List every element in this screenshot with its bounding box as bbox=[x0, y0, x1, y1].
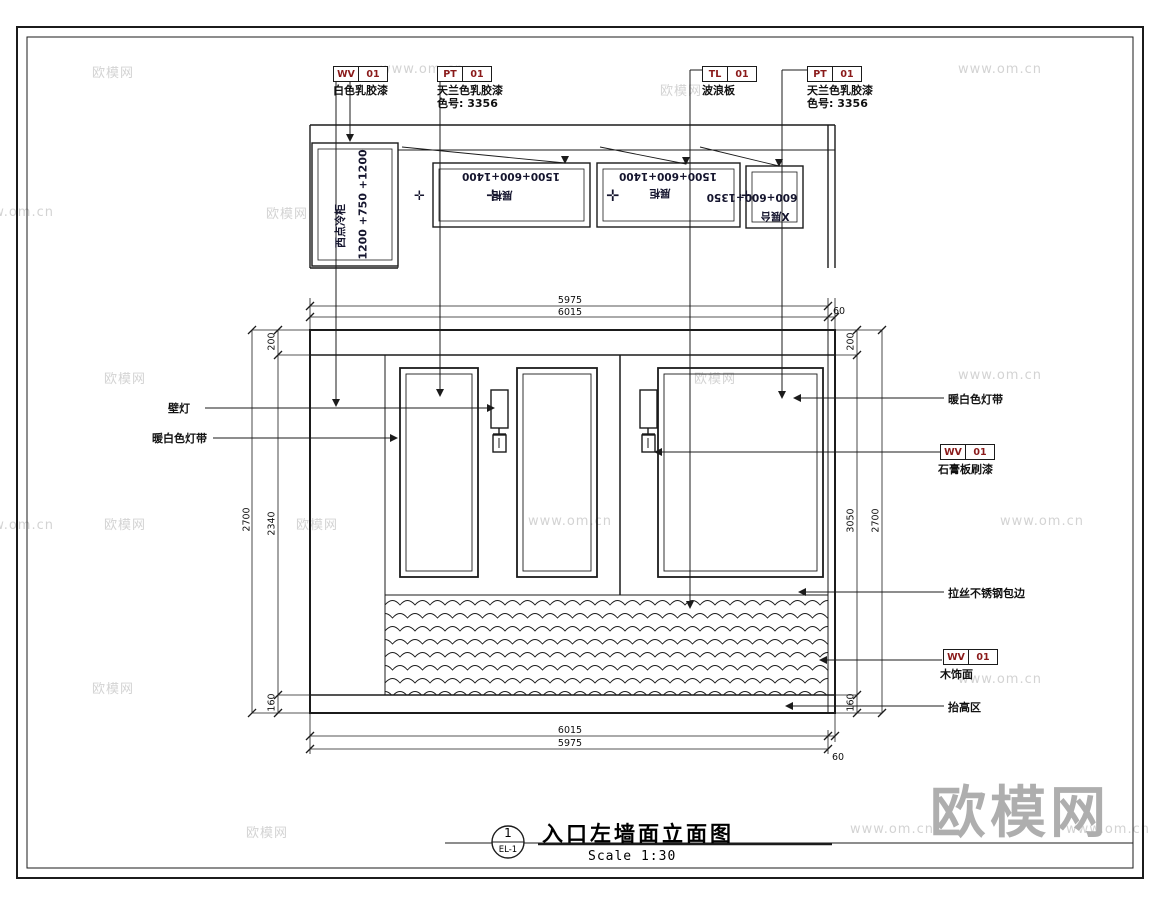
tag-number: 01 bbox=[728, 67, 756, 81]
ceiling-light-icon: ✛ bbox=[486, 186, 499, 205]
sheet-number: EL-1 bbox=[492, 845, 524, 855]
dim-left-base: 160 bbox=[267, 683, 278, 723]
callout-led-strip-right: 暖白色灯带 bbox=[948, 391, 1003, 407]
detail-number: 1 bbox=[496, 826, 520, 840]
drawing-sheet: 欧模网 www.om.cn 欧模网 www.om.cn www.om.cn 欧模… bbox=[0, 0, 1160, 899]
drawing-title: 入口左墙面立面图 bbox=[542, 818, 734, 848]
callout-stainless-edge: 拉丝不锈钢包边 bbox=[948, 585, 1025, 601]
plan-cabinet-size: 1200 +750 +1200 bbox=[357, 145, 370, 265]
tag-number: 01 bbox=[833, 67, 861, 81]
material-tag-pt-left: PT 01 bbox=[437, 66, 492, 82]
dim-right-total: 2700 bbox=[871, 491, 882, 551]
drawing-scale: Scale 1:30 bbox=[588, 849, 676, 864]
material-caption: 波浪板 bbox=[702, 82, 735, 98]
tag-number: 01 bbox=[463, 67, 491, 81]
material-caption: 木饰面 bbox=[940, 666, 973, 682]
dim-bottom-inner: 5975 bbox=[540, 738, 600, 749]
plan-cabinet-label: 西点冷柜 bbox=[332, 176, 348, 276]
material-color-number: 色号: 3356 bbox=[807, 95, 868, 111]
tag-number: 01 bbox=[966, 445, 994, 459]
dim-top-outer: 6015 bbox=[540, 307, 600, 318]
tag-leader-lines bbox=[332, 70, 807, 609]
tag-code: WV bbox=[334, 67, 359, 81]
dim-left-total: 2700 bbox=[242, 490, 253, 550]
material-tag-wv-gypsum: WV 01 bbox=[940, 444, 995, 460]
callout-raised-base: 抬高区 bbox=[948, 699, 981, 715]
plan-case2-size: 1500+600+1400 bbox=[608, 170, 728, 182]
dim-top-inner: 5975 bbox=[540, 295, 600, 306]
tag-code: WV bbox=[944, 650, 969, 664]
material-tag-wv-wood: WV 01 bbox=[943, 649, 998, 665]
plan-case3-label: X展台 bbox=[745, 209, 805, 224]
tag-code: PT bbox=[438, 67, 463, 81]
tag-code: PT bbox=[808, 67, 833, 81]
ceiling-light-icon: ✛ bbox=[414, 189, 425, 204]
plan-case1-size: 1500+600+1400 bbox=[451, 170, 571, 182]
ceiling-light-icon: ✛ bbox=[606, 186, 619, 205]
plan-case2-label: 展柜 bbox=[630, 186, 690, 201]
material-caption: 白色乳胶漆 bbox=[333, 82, 388, 98]
material-caption: 石膏板刷漆 bbox=[938, 461, 993, 477]
dim-bottom-outer: 6015 bbox=[540, 725, 600, 736]
ceiling-light-icon: ✛ bbox=[741, 189, 752, 204]
dim-left-top: 200 bbox=[267, 322, 278, 362]
dim-right-top: 200 bbox=[846, 322, 857, 362]
material-tag-tl: TL 01 bbox=[702, 66, 757, 82]
tag-number: 01 bbox=[359, 67, 387, 81]
tag-code: TL bbox=[703, 67, 728, 81]
tag-number: 01 bbox=[969, 650, 997, 664]
dim-bottom-offset: 60 bbox=[826, 752, 850, 763]
elevation-linework bbox=[310, 330, 835, 713]
plan-case3-size: 600+600+1350 bbox=[692, 191, 812, 203]
dim-right-mid: 3050 bbox=[846, 491, 857, 551]
dim-right-base: 160 bbox=[846, 683, 857, 723]
callout-led-strip-left: 暖白色灯带 bbox=[152, 430, 207, 446]
tag-code: WV bbox=[941, 445, 966, 459]
dim-left-mid: 2340 bbox=[267, 494, 278, 554]
wall-lamp-symbols bbox=[491, 390, 657, 452]
dim-top-offset: 60 bbox=[828, 306, 850, 317]
material-tag-wv-paint: WV 01 bbox=[333, 66, 388, 82]
material-tag-pt-right: PT 01 bbox=[807, 66, 862, 82]
material-color-number: 色号: 3356 bbox=[437, 95, 498, 111]
callout-wall-lamp: 壁灯 bbox=[168, 400, 190, 416]
plan-case1-label: 展柜 bbox=[472, 188, 532, 203]
